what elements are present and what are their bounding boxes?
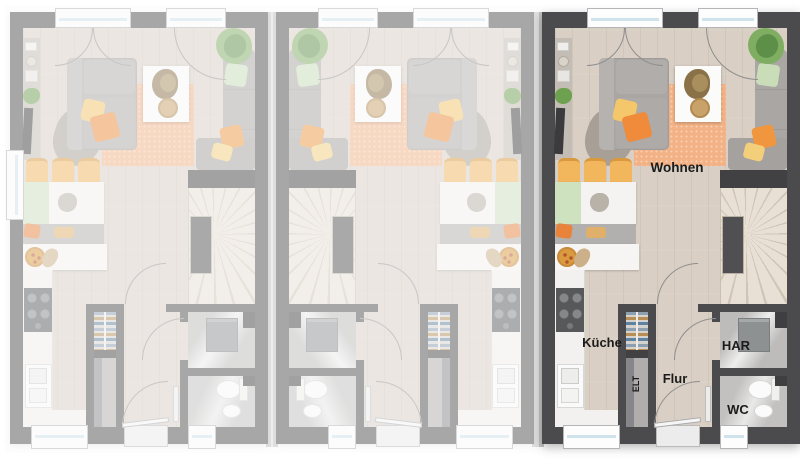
dining-chair	[470, 158, 492, 184]
decor-plate	[26, 56, 37, 67]
pillow	[555, 223, 573, 239]
dining-chair	[610, 158, 632, 184]
sink-basin	[497, 368, 515, 384]
window-glass	[702, 18, 754, 21]
dining-chair	[52, 158, 74, 184]
window-glass	[15, 155, 18, 215]
tray	[366, 98, 386, 118]
exterior-wall-right	[276, 12, 289, 444]
interior-wall	[180, 360, 188, 427]
sink-drainer	[29, 388, 47, 403]
dining-chair	[26, 158, 48, 184]
plant	[504, 88, 521, 104]
pillow	[296, 63, 321, 88]
interior-wall	[116, 304, 124, 427]
shoe-rack-pole	[438, 312, 440, 350]
sink-drainer	[561, 388, 579, 403]
house-unit-left[interactable]: Wohnen Küche Flur HAR WC ELT	[10, 12, 268, 444]
decor-plate	[558, 56, 569, 67]
closet-shelf	[94, 350, 116, 358]
dining-chair	[558, 158, 580, 184]
dried-plant	[692, 74, 708, 92]
interior-wall	[712, 360, 720, 427]
stair-newel	[332, 216, 354, 274]
sofa-backrest	[599, 58, 614, 150]
cooktop	[556, 288, 584, 332]
terrace-door-window	[587, 8, 663, 28]
stair-half-wall	[289, 170, 356, 188]
window-glass	[192, 435, 212, 438]
dining-chair	[496, 158, 518, 184]
interior-wall	[188, 368, 255, 376]
wc-door-leaf	[365, 386, 371, 422]
kitchen-window	[563, 425, 620, 449]
exterior-wall-left	[521, 12, 534, 444]
decor-box	[25, 42, 37, 51]
washing-machine	[206, 318, 238, 352]
interior-wall	[86, 304, 94, 427]
window-glass	[724, 435, 744, 438]
interior-wall	[420, 304, 428, 427]
exterior-wall-left	[542, 12, 555, 444]
window-glass	[322, 18, 374, 21]
window-glass	[59, 18, 127, 21]
pizza-plate	[499, 247, 519, 267]
terrace-door-window	[413, 8, 489, 28]
interior-wall	[648, 304, 656, 427]
utility-shelf	[243, 312, 255, 328]
wc-window	[188, 425, 216, 449]
closet-shelf	[428, 350, 450, 358]
sink-basin	[29, 368, 47, 384]
dried-plant	[160, 74, 176, 92]
exterior-wall-top	[10, 12, 268, 28]
shoe-rack-pole	[104, 312, 106, 350]
pillow	[756, 63, 781, 88]
terrace-door-window	[698, 8, 758, 28]
decor-box	[557, 42, 569, 51]
window-glass	[170, 18, 222, 21]
electrical-cabinet	[94, 358, 102, 427]
room-label-kueche: Küche	[570, 336, 634, 349]
cooktop	[492, 288, 520, 332]
exterior-wall-right	[255, 12, 268, 444]
table-runner	[495, 182, 521, 224]
room-label-flur: Flur	[647, 372, 703, 385]
pillow	[470, 227, 490, 238]
exterior-wall-top	[542, 12, 800, 28]
table-runner	[23, 182, 49, 224]
interior-wall	[356, 360, 364, 427]
kitchen-window	[456, 425, 513, 449]
toilet	[748, 380, 773, 399]
interior-wall	[450, 304, 458, 427]
table-centerpiece	[467, 193, 486, 212]
wash-basin	[222, 404, 241, 418]
tray	[158, 98, 178, 118]
window-glass	[417, 18, 485, 21]
stair-newel	[722, 216, 744, 274]
decor-box	[507, 42, 519, 51]
exterior-wall-right	[787, 12, 800, 444]
utility-shelf	[775, 312, 787, 328]
room-label-wc: WC	[710, 403, 766, 416]
terrace-door-window	[55, 8, 131, 28]
kitchen-window	[31, 425, 88, 449]
dining-chair	[78, 158, 100, 184]
window-glass	[332, 435, 352, 438]
wc-door-leaf	[173, 386, 179, 422]
pillow	[586, 227, 606, 238]
window-glass	[567, 435, 616, 438]
room-label-wohnen: Wohnen	[635, 161, 719, 175]
window-glass	[591, 18, 659, 21]
decor-box	[506, 70, 519, 82]
wc-shelf	[775, 376, 787, 386]
room-label-elt: ELT	[632, 366, 644, 402]
sofa-backrest	[462, 58, 477, 150]
stair-half-wall	[188, 170, 255, 188]
decor-plate	[507, 56, 518, 67]
decor-box	[557, 70, 570, 82]
pillow	[503, 223, 521, 239]
wc-shelf	[289, 376, 301, 386]
sink-drainer	[497, 388, 515, 403]
closet-shelf	[626, 350, 648, 358]
pillow	[54, 227, 74, 238]
exterior-wall-top	[276, 12, 534, 28]
dining-chair	[584, 158, 606, 184]
interior-wall	[289, 368, 356, 376]
wc-window	[328, 425, 356, 449]
side-window	[6, 150, 24, 220]
entrance-door	[376, 425, 420, 447]
interior-wall	[618, 304, 626, 427]
house-unit-middle[interactable]: Wohnen Küche Flur HAR WC ELT	[276, 12, 534, 444]
utility-shelf	[289, 312, 301, 328]
toilet	[303, 380, 328, 399]
wc-shelf	[243, 376, 255, 386]
pillow	[23, 223, 41, 239]
table-runner	[555, 182, 581, 224]
room-label-har: HAR	[706, 339, 766, 352]
interior-wall	[289, 304, 378, 312]
terrace-door-window	[166, 8, 226, 28]
stair-newel	[190, 216, 212, 274]
tray	[690, 98, 710, 118]
terrace-door-window	[318, 8, 378, 28]
electrical-cabinet	[442, 358, 450, 427]
pillow	[224, 63, 249, 88]
house-unit-right[interactable]: Wohnen Küche Flur HAR WC ELT	[542, 12, 800, 444]
interior-wall	[720, 368, 787, 376]
cooktop	[24, 288, 52, 332]
window-glass	[460, 435, 509, 438]
floor-plan-canvas: Wohnen Küche Flur HAR WC ELT	[0, 0, 800, 457]
decor-box	[25, 70, 38, 82]
dining-chair	[444, 158, 466, 184]
stair-half-wall	[720, 170, 787, 188]
dried-plant	[368, 74, 384, 92]
sofa-backrest	[67, 58, 82, 150]
shoe-rack-pole	[636, 312, 638, 350]
entrance-door	[656, 425, 700, 447]
wash-basin	[303, 404, 322, 418]
entrance-door	[124, 425, 168, 447]
window-glass	[35, 435, 84, 438]
sink-basin	[561, 368, 579, 384]
toilet	[216, 380, 241, 399]
washing-machine	[306, 318, 338, 352]
wc-window	[720, 425, 748, 449]
exterior-wall-left	[10, 12, 23, 444]
